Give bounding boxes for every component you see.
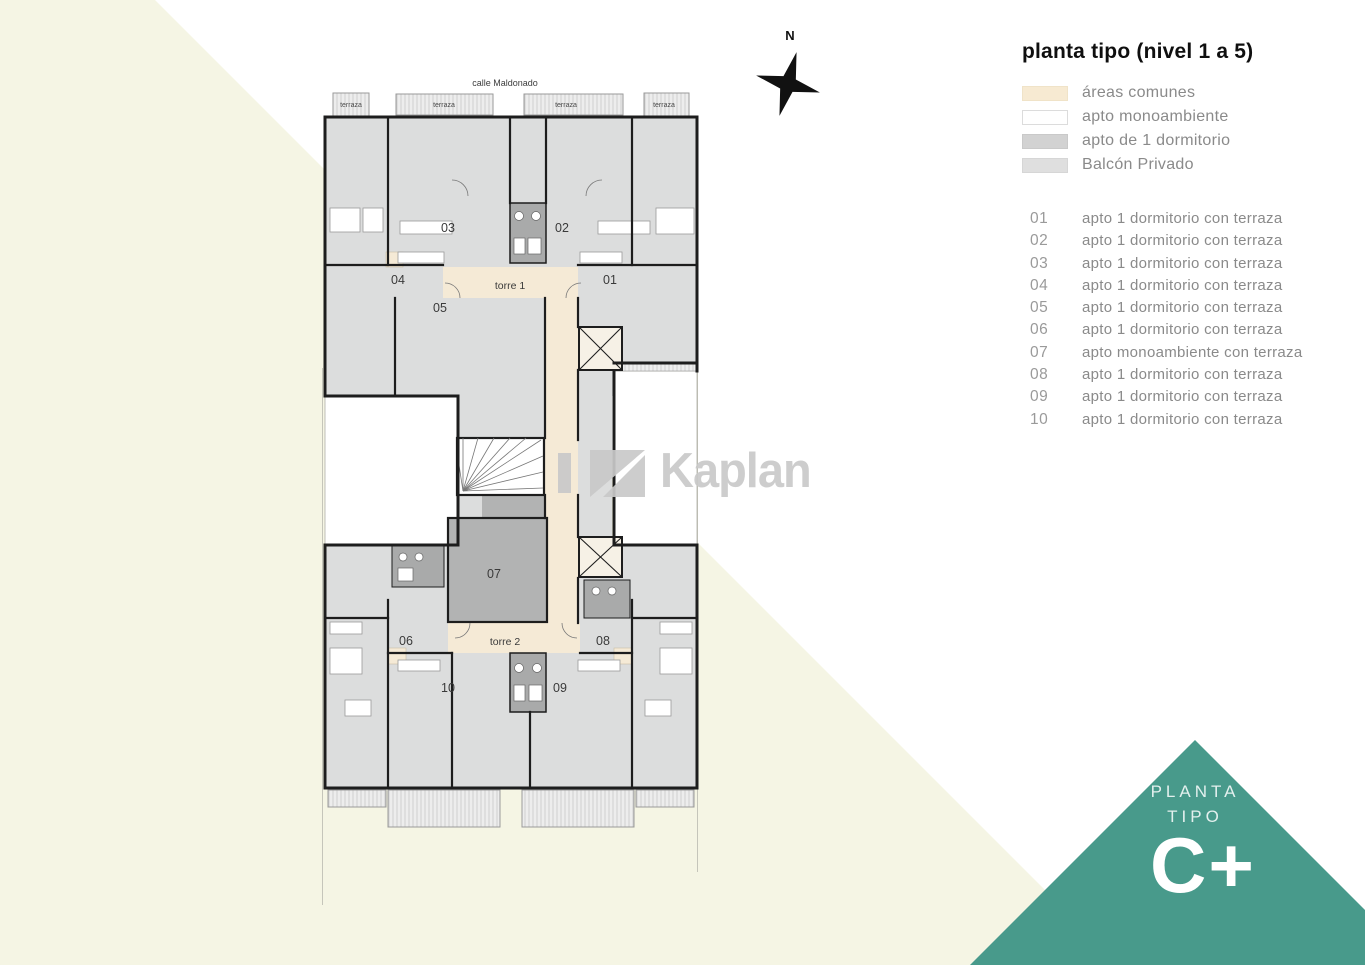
unit-list-item: 06 apto 1 dormitorio con terraza <box>1030 321 1360 343</box>
plan-unit-01: 01 <box>603 273 617 287</box>
unit-list-item: 09 apto 1 dormitorio con terraza <box>1030 388 1360 410</box>
plan-unit-02: 02 <box>555 221 569 235</box>
legend: áreas comunes apto monoambiente apto de … <box>1022 86 1352 172</box>
north-compass: N <box>748 22 833 122</box>
north-label: N <box>785 28 794 43</box>
plan-unit-06: 06 <box>399 634 413 648</box>
plan-unit-08: 08 <box>596 634 610 648</box>
legend-label: apto monoambiente <box>1082 108 1229 126</box>
unit-number: 10 <box>1030 411 1064 429</box>
legend-label: áreas comunes <box>1082 84 1195 102</box>
plan-unit-04: 04 <box>391 273 405 287</box>
badge-triangle: PLANTA TIPO C+ <box>960 740 1365 965</box>
unit-description: apto 1 dormitorio con terraza <box>1082 321 1282 338</box>
unit-number: 05 <box>1030 299 1064 317</box>
svg-text:terraza: terraza <box>433 102 455 109</box>
bottom-balconies <box>328 790 694 827</box>
torre-2-label: torre 2 <box>490 636 521 648</box>
legend-row-areas-comunes: áreas comunes <box>1022 86 1352 100</box>
kaplan-logo-icon <box>556 440 648 498</box>
unit-description: apto 1 dormitorio con terraza <box>1082 232 1282 249</box>
legend-row-1-dormitorio: apto de 1 dormitorio <box>1022 134 1352 148</box>
plan-unit-03: 03 <box>441 221 455 235</box>
compass-star-icon <box>748 44 828 122</box>
unit-description: apto 1 dormitorio con terraza <box>1082 255 1282 272</box>
unit-description: apto 1 dormitorio con terraza <box>1082 388 1282 405</box>
unit-list-item: 04 apto 1 dormitorio con terraza <box>1030 277 1360 299</box>
unit-list-item: 02 apto 1 dormitorio con terraza <box>1030 232 1360 254</box>
unit-number: 01 <box>1030 210 1064 228</box>
unit-description: apto 1 dormitorio con terraza <box>1082 366 1282 383</box>
unit-number: 08 <box>1030 366 1064 384</box>
legend-swatch-1-dormitorio <box>1022 134 1068 149</box>
stairs <box>457 438 544 495</box>
unit-description: apto monoambiente con terraza <box>1082 344 1303 361</box>
legend-swatch-balcon-privado <box>1022 158 1068 173</box>
legend-row-monoambiente: apto monoambiente <box>1022 110 1352 124</box>
kaplan-wordmark: Kaplan <box>660 444 811 493</box>
unit-number: 04 <box>1030 277 1064 295</box>
legend-label: apto de 1 dormitorio <box>1082 132 1230 150</box>
top-terrace-labels: terraza terraza terraza terraza <box>340 102 675 109</box>
unit-description: apto 1 dormitorio con terraza <box>1082 210 1282 227</box>
street-label: calle Maldonado <box>472 78 538 88</box>
unit-number: 02 <box>1030 232 1064 250</box>
unit-number: 07 <box>1030 344 1064 362</box>
unit-description: apto 1 dormitorio con terraza <box>1082 299 1282 316</box>
unit-description: apto 1 dormitorio con terraza <box>1082 411 1282 428</box>
plan-unit-10: 10 <box>441 681 455 695</box>
unit-list-item: 07 apto monoambiente con terraza <box>1030 344 1360 366</box>
svg-text:terraza: terraza <box>653 102 675 109</box>
plan-unit-07: 07 <box>487 567 501 581</box>
unit-list-item: 01 apto 1 dormitorio con terraza <box>1030 210 1360 232</box>
legend-label: Balcón Privado <box>1082 156 1194 174</box>
top-terraces <box>333 93 689 116</box>
unit-list-item: 03 apto 1 dormitorio con terraza <box>1030 255 1360 277</box>
svg-text:terraza: terraza <box>340 102 362 109</box>
unit-number: 09 <box>1030 388 1064 406</box>
unit-number: 03 <box>1030 255 1064 273</box>
unit-list-item: 05 apto 1 dormitorio con terraza <box>1030 299 1360 321</box>
unit-number: 06 <box>1030 321 1064 339</box>
svg-text:terraza: terraza <box>555 102 577 109</box>
torre-1-label: torre 1 <box>495 280 526 292</box>
badge-planta-label: PLANTA <box>1095 782 1295 802</box>
page-title: planta tipo (nivel 1 a 5) <box>1022 40 1352 64</box>
unit-description: apto 1 dormitorio con terraza <box>1082 277 1282 294</box>
plan-unit-09: 09 <box>553 681 567 695</box>
elevator-bottom <box>579 537 622 577</box>
kaplan-watermark: Kaplan <box>556 440 811 498</box>
unit-list-item: 10 apto 1 dormitorio con terraza <box>1030 411 1360 433</box>
unit-list: 01 apto 1 dormitorio con terraza 02 apto… <box>1030 210 1360 433</box>
legend-row-balcon-privado: Balcón Privado <box>1022 158 1352 172</box>
badge-cplus-label: C+ <box>1098 826 1308 904</box>
legend-swatch-areas-comunes <box>1022 86 1068 101</box>
unit-list-item: 08 apto 1 dormitorio con terraza <box>1030 366 1360 388</box>
plan-unit-05: 05 <box>433 301 447 315</box>
info-panel: planta tipo (nivel 1 a 5) áreas comunes … <box>1022 40 1352 182</box>
legend-swatch-monoambiente <box>1022 110 1068 125</box>
